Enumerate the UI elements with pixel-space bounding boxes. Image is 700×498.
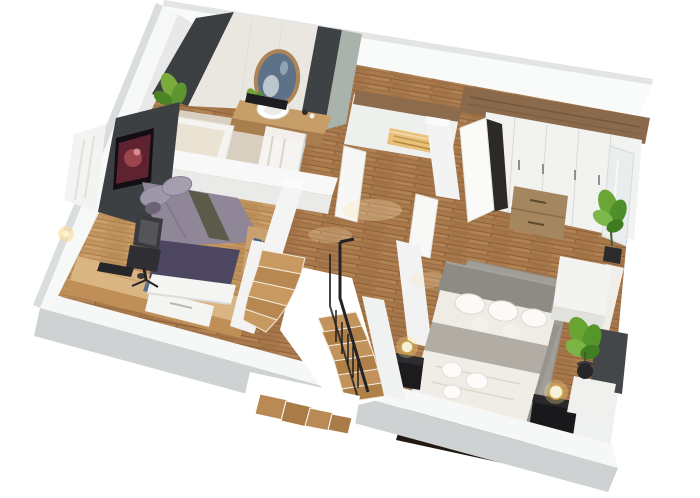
vanity-white (553, 256, 612, 316)
lamp-left-ball (401, 341, 413, 353)
tv-nebula-core (134, 149, 141, 156)
floorplan-render: 3D isometric cutaway floor-plan render o… (0, 0, 700, 498)
toiletry-dark (302, 109, 308, 115)
wall-sconce-core (63, 231, 70, 238)
toiletry-white (310, 114, 315, 119)
plant-upper-pot (603, 246, 622, 264)
lamp-right-ball (549, 385, 563, 399)
hall-floor-glow (342, 199, 402, 221)
plant-upper-stem (611, 232, 612, 246)
lower-floor-step-4 (328, 414, 352, 434)
chair-mesh (138, 219, 159, 246)
cabinet-bottom-right (567, 376, 616, 420)
floorplan-svg (0, 0, 700, 498)
chair-post (144, 268, 146, 280)
plant-bottom-pot (577, 363, 593, 379)
shapes-root (33, 0, 653, 492)
